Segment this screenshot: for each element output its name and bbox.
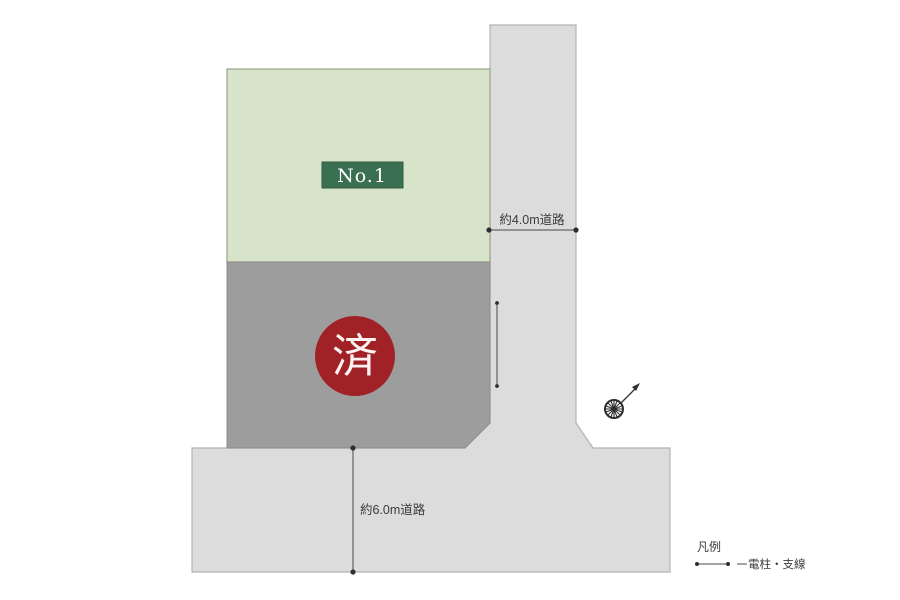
measure-endpoint-dot [350,569,355,574]
sold-stamp-text: 済 [332,329,378,383]
legend-pole-wire-symbol [695,562,747,566]
lot-plan-drawing: No.1 済 約4.0m道路 約6.0m道路 [0,0,900,600]
legend-title: 凡例 [697,540,721,554]
utility-pole-symbol [605,383,640,418]
measure-endpoint-dot [486,227,491,232]
sold-stamp: 済 [315,316,395,396]
lot-plan-page: No.1 済 約4.0m道路 約6.0m道路 [0,0,900,600]
plot-1-label: No.1 [337,165,387,187]
road-width-label-horizontal: 約6.0m道路 [360,502,426,517]
road-width-label-vertical: 約4.0m道路 [499,212,565,227]
frontage-endpoint-dot [495,384,499,388]
frontage-endpoint-dot [495,301,499,305]
guy-wire-line [621,388,636,403]
plot-1-label-group: No.1 [322,162,403,188]
guy-wire-arrow [632,383,640,391]
legend-span-dot [695,562,699,566]
legend: 凡例 電柱・支線 [695,540,806,571]
measure-endpoint-dot [350,445,355,450]
measure-endpoint-dot [573,227,578,232]
legend-pole-wire-label: 電柱・支線 [748,557,806,571]
legend-span-dot [726,562,730,566]
